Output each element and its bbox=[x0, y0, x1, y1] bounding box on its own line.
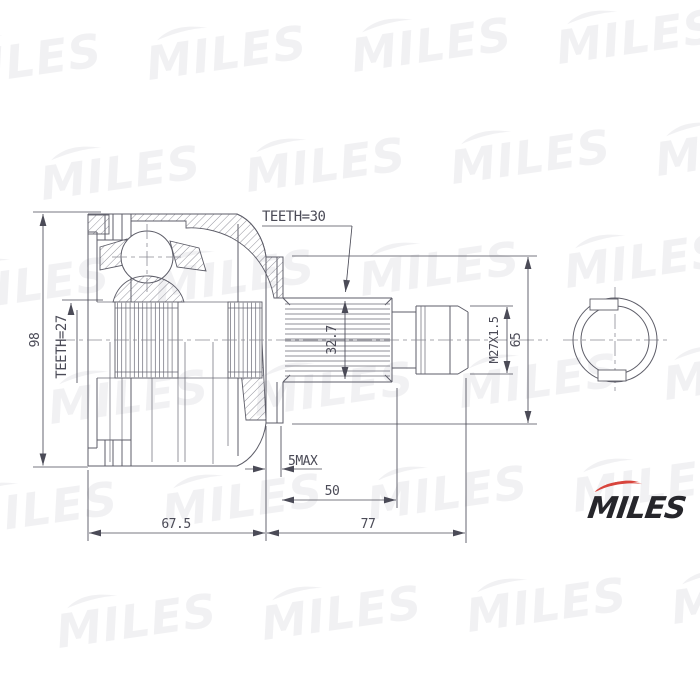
label-len-77: 77 bbox=[361, 517, 376, 532]
label-teeth-27: TEETH=27 bbox=[54, 315, 70, 379]
brand-logo: MILES bbox=[588, 477, 700, 526]
snap-ring-view bbox=[563, 287, 668, 394]
inner-race bbox=[113, 276, 184, 302]
label-len-50: 50 bbox=[325, 484, 340, 499]
drawing-canvas: MILESMILESMILESMILESMILESMILESMILESMILES… bbox=[0, 0, 700, 700]
label-thread-m27: M27X1.5 bbox=[487, 316, 501, 363]
label-teeth-30: TEETH=30 bbox=[262, 209, 326, 225]
label-height-98: 98 bbox=[28, 333, 43, 348]
ball-and-cage bbox=[100, 224, 206, 302]
label-dia-65: 65 bbox=[509, 333, 524, 348]
brand-logo-text: MILES bbox=[586, 491, 700, 526]
label-len-67-5: 67.5 bbox=[161, 517, 190, 532]
label-spline-32-7: 32.7 bbox=[325, 325, 340, 354]
label-smax: 5MAX bbox=[288, 454, 318, 469]
cv-joint-technical-drawing: 98 TEETH=27 TEETH=30 32.7 M27X1.5 65 bbox=[0, 0, 700, 700]
